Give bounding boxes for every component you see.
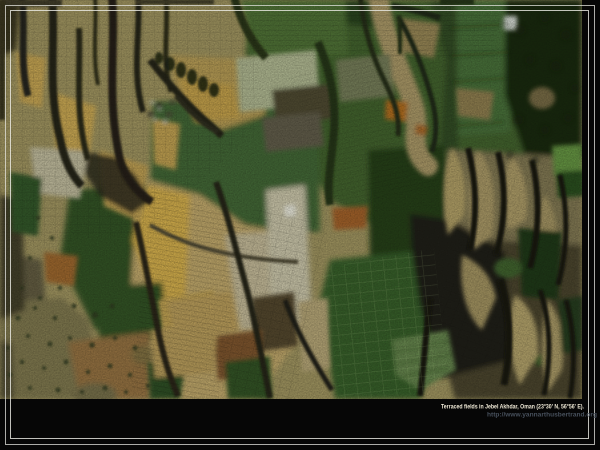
svg-text:http://www.yannarthusbertrand.: http://www.yannarthusbertrand.org bbox=[487, 412, 597, 419]
svg-text:Terraced fields in Jebel Akhda: Terraced fields in Jebel Akhdar, Oman (2… bbox=[441, 403, 584, 411]
